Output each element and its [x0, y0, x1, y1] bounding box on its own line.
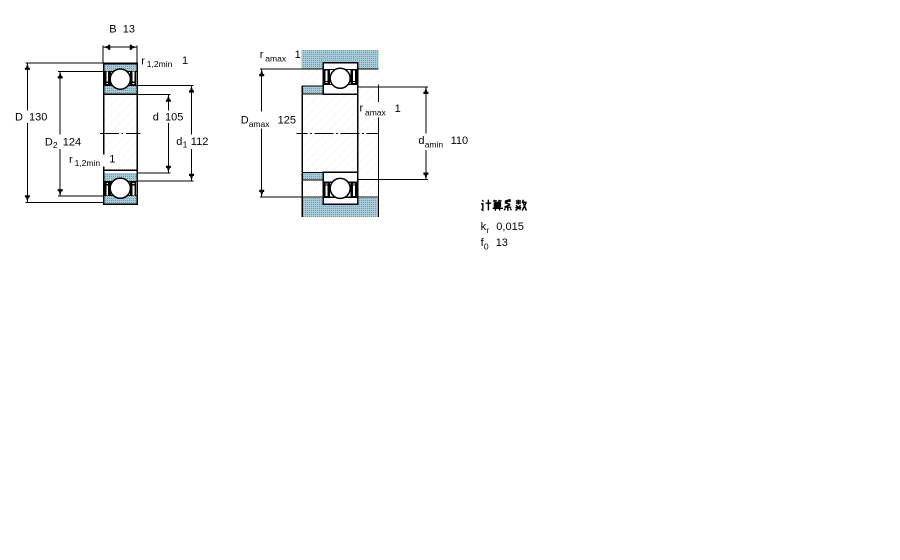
- svg-text:1: 1: [182, 55, 188, 67]
- svg-text:1,2min: 1,2min: [147, 59, 173, 69]
- svg-text:1: 1: [183, 139, 188, 149]
- svg-text:112: 112: [191, 136, 209, 148]
- svg-text:amax: amax: [365, 107, 387, 117]
- svg-text:d: d: [176, 136, 182, 148]
- svg-text:1: 1: [109, 154, 115, 166]
- svg-text:D: D: [45, 137, 53, 149]
- svg-text:1: 1: [295, 49, 301, 61]
- svg-text:r: r: [69, 154, 73, 166]
- svg-text:D 130: D 130: [15, 112, 47, 124]
- svg-text:13: 13: [496, 237, 508, 249]
- svg-text:r: r: [260, 49, 264, 61]
- svg-text:r: r: [141, 55, 145, 67]
- svg-text:0: 0: [484, 241, 489, 251]
- svg-text:2: 2: [53, 140, 58, 150]
- svg-text:amax: amax: [265, 53, 287, 63]
- svg-text:125: 125: [278, 114, 296, 126]
- svg-text:124: 124: [63, 137, 81, 149]
- svg-text:r: r: [486, 225, 489, 235]
- svg-text:d: d: [418, 135, 424, 147]
- svg-text:1: 1: [395, 103, 401, 115]
- svg-text:D: D: [241, 114, 249, 126]
- svg-text:amax: amax: [249, 119, 271, 129]
- svg-text:amin: amin: [425, 140, 444, 150]
- svg-text:d 105: d 105: [153, 112, 184, 124]
- svg-text:1,2min: 1,2min: [75, 158, 101, 168]
- svg-text:110: 110: [451, 135, 469, 147]
- svg-text:B 13: B 13: [109, 24, 135, 36]
- svg-text:r: r: [360, 103, 364, 115]
- svg-text:0,015: 0,015: [496, 221, 524, 233]
